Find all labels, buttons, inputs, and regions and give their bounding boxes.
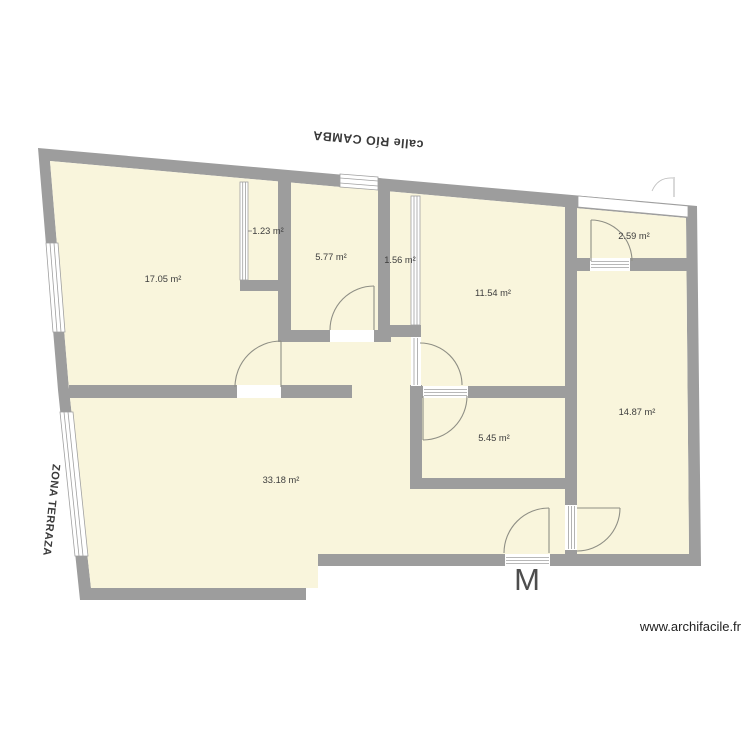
wall-bed-small-bottom-left bbox=[291, 330, 330, 342]
wall-right-column-lower bbox=[565, 550, 577, 558]
wall-right-column-upper bbox=[565, 206, 577, 505]
opening-top-right bbox=[652, 177, 674, 197]
doorway-storage bbox=[590, 258, 630, 271]
doorway-living bbox=[237, 385, 281, 398]
wall-bath-bottom bbox=[410, 478, 565, 489]
room-label-closet: 1.23 m² bbox=[252, 226, 284, 236]
glazing-closet bbox=[240, 182, 248, 280]
doorway-corridor bbox=[411, 337, 421, 386]
room-label-bed-small: 5.77 m² bbox=[315, 252, 347, 262]
room-label-living: 17.05 m² bbox=[145, 274, 182, 284]
window-top-bed-small bbox=[340, 174, 378, 190]
wall-storage-bottom-right bbox=[630, 258, 688, 271]
wall-bed-small-bottom-right bbox=[374, 330, 391, 342]
floor-plan: 17.05 m² 1.23 m² 5.77 m² 1.56 m² 11.54 m… bbox=[0, 0, 750, 750]
outer-walls bbox=[38, 148, 701, 600]
wall-closet-right bbox=[278, 180, 291, 342]
wall-storage-bottom-left bbox=[577, 258, 590, 271]
room-label-main: 33.18 m² bbox=[263, 475, 300, 485]
wall-corridor-bottom bbox=[390, 325, 421, 337]
room-label-storage: 2.59 m² bbox=[618, 231, 650, 241]
wall-closet-bottom bbox=[240, 280, 278, 291]
room-label-corridor: 1.56 m² bbox=[384, 255, 416, 265]
floor-area bbox=[50, 161, 689, 588]
street-label: calle RÍO CAMBA bbox=[312, 128, 424, 153]
terrace-label: ZONA TERRAZA bbox=[40, 463, 62, 556]
doorway-bath bbox=[423, 386, 468, 398]
room-label-bed-mid: 11.54 m² bbox=[475, 288, 511, 298]
doorway-bed-small bbox=[330, 330, 374, 342]
room-label-bath: 5.45 m² bbox=[478, 433, 510, 443]
watermark-label: www.archifacile.fr bbox=[639, 619, 742, 634]
room-label-bed-big: 14.87 m² bbox=[619, 407, 656, 417]
wall-bed-mid-bottom bbox=[468, 386, 577, 398]
entrance-label: M bbox=[514, 562, 540, 597]
doorway-bed-big bbox=[565, 505, 577, 550]
wall-bath-left bbox=[410, 385, 422, 478]
wall-living-bottom-right bbox=[281, 385, 352, 398]
wall-living-bottom-left bbox=[69, 385, 237, 398]
